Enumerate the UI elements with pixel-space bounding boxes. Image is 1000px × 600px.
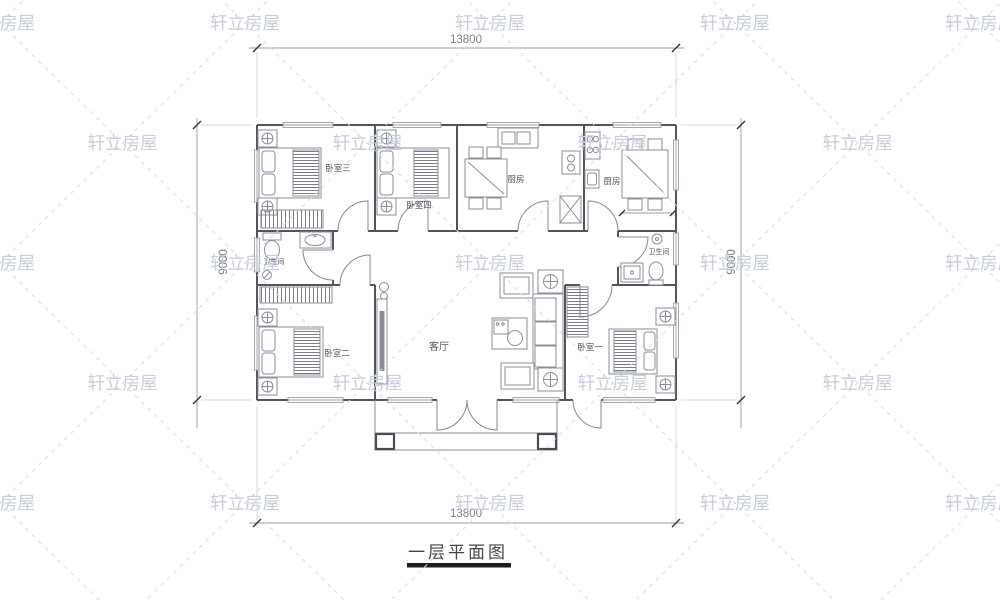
furniture-bedroom2 <box>258 287 332 395</box>
watermark-text: 轩立房屋 <box>455 13 525 33</box>
watermark-text: 轩立房屋 <box>700 493 770 513</box>
watermark-text: 轩立房屋 <box>455 493 525 513</box>
watermark-text: 轩立房屋 <box>210 13 280 33</box>
title-underline <box>407 563 511 568</box>
watermark-text: 轩立房屋 <box>0 13 35 33</box>
dimension-left: 9000 <box>193 118 252 428</box>
watermark-dash-line <box>0 0 1000 503</box>
label-bedroom1: 卧室一 <box>577 342 603 352</box>
watermark-text: 轩立房屋 <box>88 373 158 393</box>
label-living: 客厅 <box>429 340 449 353</box>
furniture-bedroom3 <box>258 130 323 228</box>
watermark-text: 轩立房屋 <box>945 13 1000 33</box>
watermark-text: 轩立房屋 <box>210 253 280 273</box>
watermark-text: 轩立房屋 <box>333 133 403 153</box>
watermark-text: 轩立房屋 <box>700 13 770 33</box>
watermark-text: 轩立房屋 <box>455 253 525 273</box>
watermark-layer: 轩立房屋轩立房屋轩立房屋轩立房屋轩立房屋轩立房屋轩立房屋轩立房屋轩立房屋轩立房屋… <box>0 0 1000 600</box>
label-bathroom-right: 卫生间 <box>649 247 670 256</box>
watermark-text: 轩立房屋 <box>0 253 35 273</box>
watermark-text: 轩立房屋 <box>578 373 648 393</box>
furniture-living <box>377 270 563 391</box>
floor-plan-canvas: 卧室三 卧室四 厨房 厨房 卫生间 卫生间 卧室二 客厅 卧室一 13800 1… <box>0 0 1000 600</box>
watermark-text: 轩立房屋 <box>578 133 648 153</box>
drawing-title-text: 一层平面图 <box>408 543 508 562</box>
label-bedroom3: 卧室三 <box>325 163 351 173</box>
watermark-text: 轩立房屋 <box>88 133 158 153</box>
watermark-text: 轩立房屋 <box>700 253 770 273</box>
watermark-text: 轩立房屋 <box>945 253 1000 273</box>
watermark-text: 轩立房屋 <box>823 133 893 153</box>
watermark-text: 轩立房屋 <box>333 373 403 393</box>
label-kitchen-left: 厨房 <box>507 174 524 184</box>
watermark-text: 轩立房屋 <box>210 493 280 513</box>
furniture-bathroom-right <box>621 234 663 285</box>
watermark-text: 轩立房屋 <box>0 493 35 513</box>
dimension-right: 9000 <box>681 118 745 428</box>
dimension-top: 13800 <box>249 34 684 118</box>
label-kitchen-right: 厨房 <box>603 176 620 186</box>
watermark-text: 轩立房屋 <box>945 493 1000 513</box>
drawing-title: 一层平面图 <box>407 543 511 568</box>
watermark-text: 轩立房屋 <box>823 373 893 393</box>
watermark-dash-line <box>0 23 1000 600</box>
label-bedroom4: 卧室四 <box>406 200 432 210</box>
floor-plan-page: 卧室三 卧室四 厨房 厨房 卫生间 卫生间 卧室二 客厅 卧室一 13800 1… <box>0 0 1000 600</box>
